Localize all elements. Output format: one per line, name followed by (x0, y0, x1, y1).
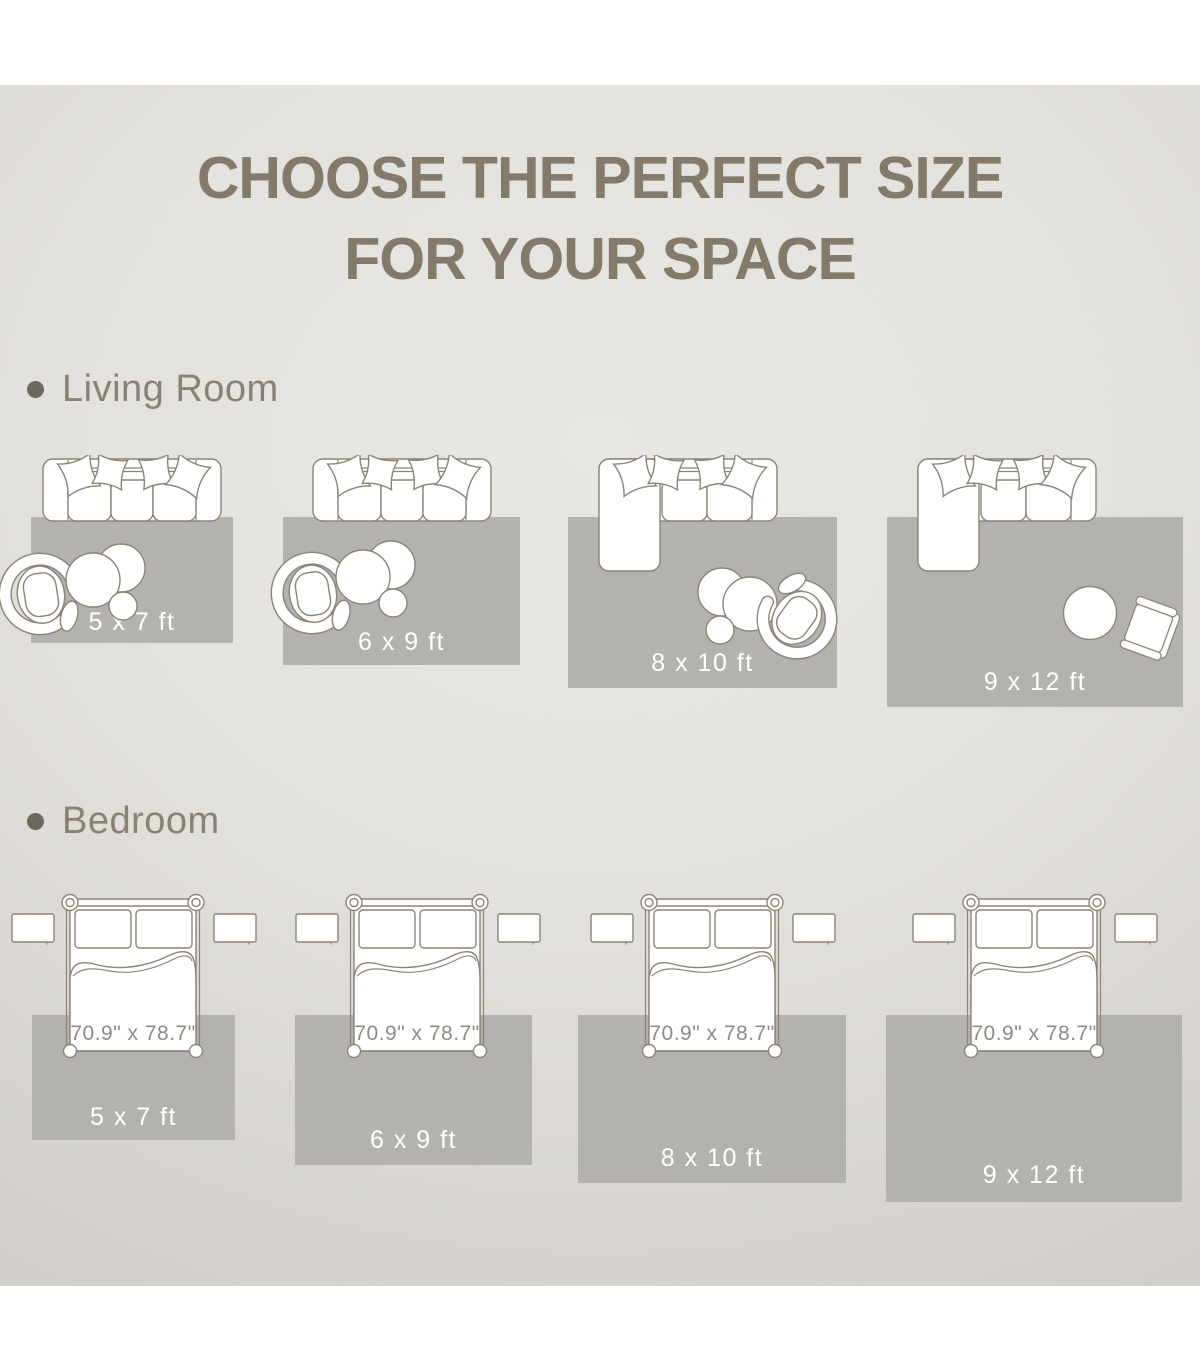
rug-size-label: 9 x 12 ft (886, 1161, 1182, 1190)
bullet-icon (27, 381, 44, 398)
bed-dimensions-label: 70.9" x 78.7" (354, 1022, 479, 1046)
round-table-icon (1062, 585, 1118, 641)
sofa-icon (42, 455, 222, 525)
bed-dimensions-label: 70.9" x 78.7" (971, 1022, 1096, 1046)
page-title: CHOOSE THE PERFECT SIZE FOR YOUR SPACE (0, 138, 1200, 300)
bed-dimensions-label: 70.9" x 78.7" (70, 1022, 195, 1046)
section-label-bedroom: Bedroom (62, 800, 220, 843)
rug-size-label: 9 x 12 ft (887, 668, 1183, 697)
sectional-sofa-icon (917, 455, 1097, 573)
nightstand-icon (295, 913, 339, 945)
section-header-bedroom: Bedroom (27, 800, 220, 843)
rug-size-guide-infographic: CHOOSE THE PERFECT SIZE FOR YOUR SPACE L… (0, 0, 1200, 1372)
nightstand-icon (213, 913, 257, 945)
page-title-line2: FOR YOUR SPACE (0, 219, 1200, 300)
nightstand-icon (1114, 913, 1158, 945)
bed-dimensions-label: 70.9" x 78.7" (649, 1022, 774, 1046)
bullet-icon (27, 813, 44, 830)
coffee-table-icon (329, 531, 421, 623)
rug-size-label: 8 x 10 ft (578, 1144, 846, 1173)
rug-size-label: 5 x 7 ft (32, 1103, 235, 1132)
nightstand-icon (590, 913, 634, 945)
page-title-line1: CHOOSE THE PERFECT SIZE (0, 138, 1200, 219)
nightstand-icon (792, 913, 836, 945)
nightstand-icon (11, 913, 55, 945)
coffee-table-icon (59, 534, 151, 626)
sectional-sofa-icon (598, 455, 778, 573)
sofa-icon (312, 455, 492, 525)
section-label-living-room: Living Room (62, 368, 279, 411)
nightstand-icon (497, 913, 541, 945)
section-header-living-room: Living Room (27, 368, 279, 411)
nightstand-icon (912, 913, 956, 945)
rug-size-label: 6 x 9 ft (295, 1126, 532, 1155)
